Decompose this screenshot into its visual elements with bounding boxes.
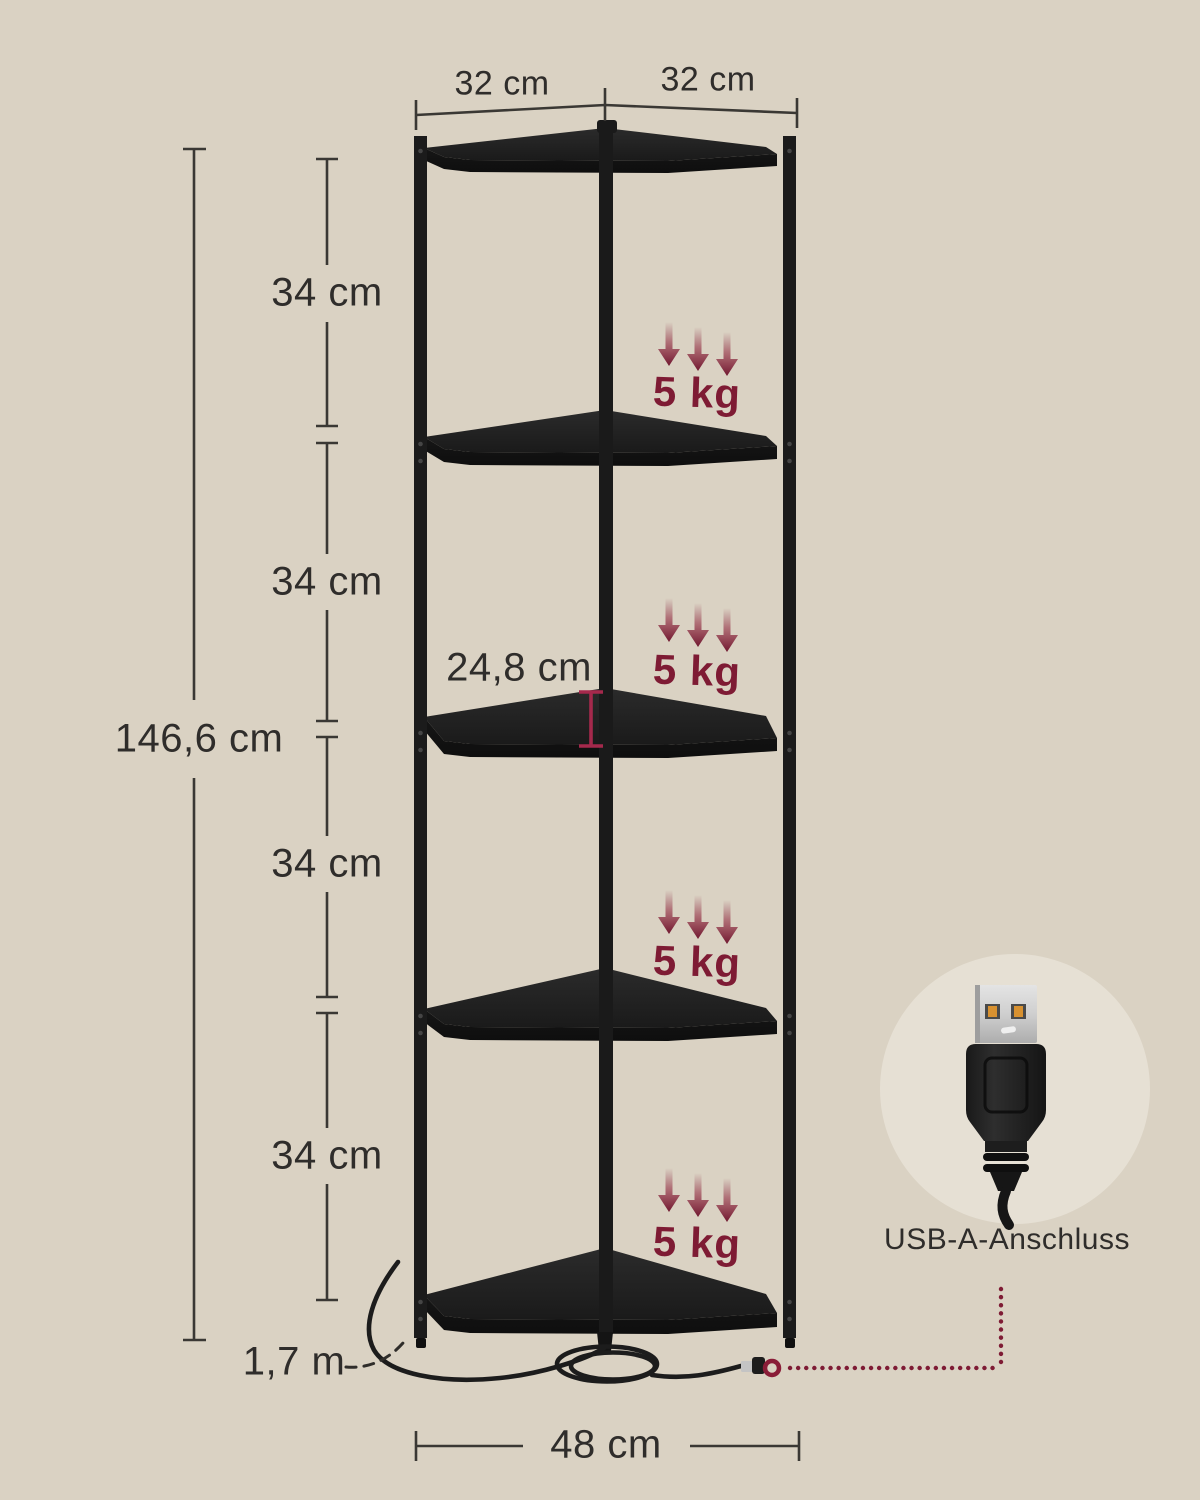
triple-down-arrow-icon: [658, 890, 738, 944]
tier-spacing-label-3: 34 cm: [271, 842, 382, 887]
load-capacity-label-2: 5 kg: [652, 645, 742, 696]
right-leg: [783, 136, 796, 1348]
corner-shelf-unit: [414, 120, 796, 1351]
triple-down-arrow-icon: [658, 598, 738, 652]
load-capacity-label-1: 5 kg: [652, 367, 742, 418]
dotted-connector-line: [790, 1281, 1001, 1368]
usb-callout: [880, 954, 1150, 1225]
tier-spacing-label-4: 34 cm: [271, 1134, 382, 1179]
total-height-label: 146,6 cm: [115, 717, 284, 762]
tier-spacing-label-1: 34 cm: [271, 271, 382, 316]
base-width-label: 48 cm: [550, 1423, 661, 1468]
usb-port-label: USB-A-Anschluss: [884, 1223, 1130, 1257]
load-capacity-label-3: 5 kg: [652, 936, 742, 987]
ring-marker-icon: [765, 1361, 779, 1375]
top-width-right-label: 32 cm: [660, 61, 755, 100]
top-width-left-label: 32 cm: [454, 65, 549, 104]
product-dimension-diagram: 32 cm 32 cm 34 cm 34 cm 34 cm 34 cm 146,…: [0, 0, 1200, 1500]
triple-down-arrow-icon: [658, 1168, 738, 1222]
tier-spacing-line: [316, 159, 338, 1300]
load-capacity-label-4: 5 kg: [652, 1217, 742, 1268]
left-leg: [414, 136, 427, 1348]
cable-length-label: 1,7 m: [243, 1340, 346, 1385]
tier-spacing-label-2: 34 cm: [271, 560, 382, 605]
shelf-depth-label: 24,8 cm: [446, 646, 592, 691]
cable-end-plug-icon: [741, 1357, 765, 1374]
